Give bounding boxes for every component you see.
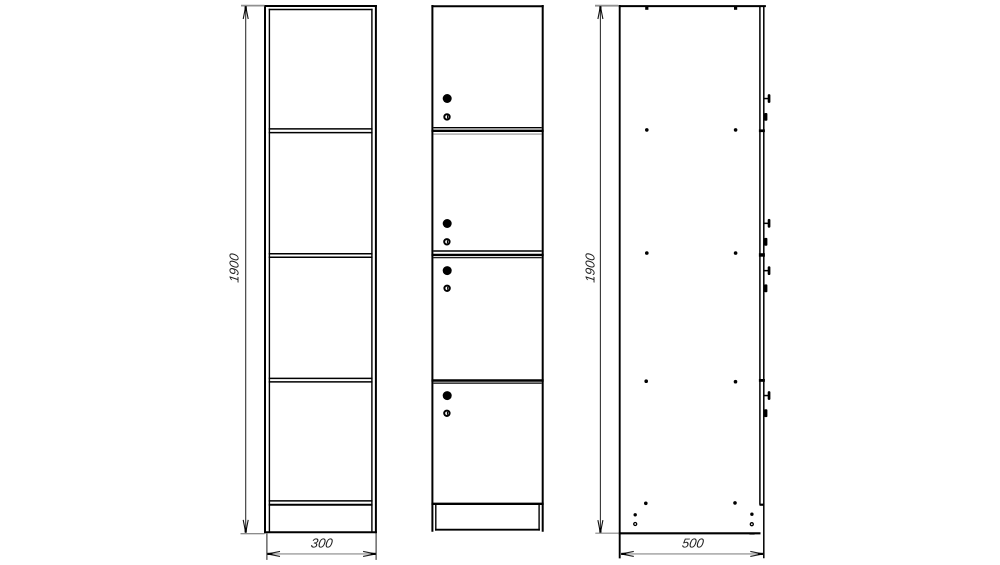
svg-text:1900: 1900 — [226, 252, 241, 284]
svg-text:1900: 1900 — [583, 252, 598, 284]
svg-text:300: 300 — [310, 535, 334, 550]
svg-text:500: 500 — [681, 536, 705, 551]
